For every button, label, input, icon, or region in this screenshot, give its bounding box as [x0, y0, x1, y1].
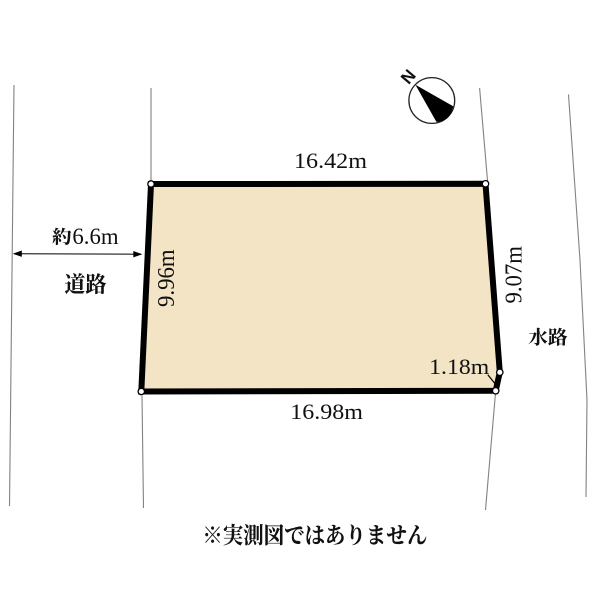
svg-text:9.07m: 9.07m: [502, 246, 528, 304]
svg-text:1.18m: 1.18m: [429, 354, 490, 379]
svg-text:6.6m: 6.6m: [72, 224, 118, 249]
svg-text:9.96m: 9.96m: [154, 249, 180, 307]
svg-text:16.98m: 16.98m: [290, 399, 363, 424]
svg-text:16.42m: 16.42m: [294, 148, 368, 173]
